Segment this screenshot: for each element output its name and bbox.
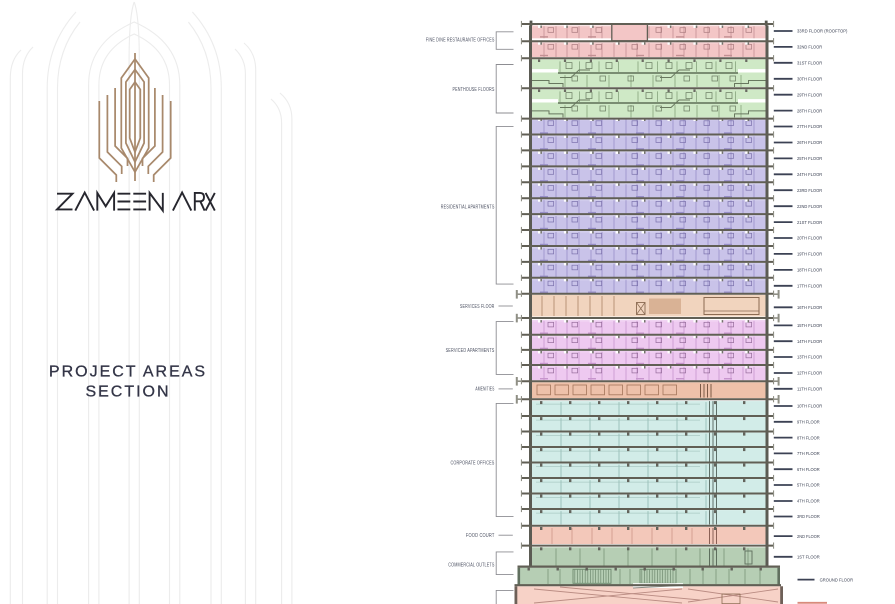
svg-text:30TH FLOOR: 30TH FLOOR <box>797 77 823 83</box>
svg-text:28TH FLOOR: 28TH FLOOR <box>797 108 823 114</box>
svg-text:RESIDENTIAL APARTMENTS: RESIDENTIAL APARTMENTS <box>441 204 495 210</box>
svg-text:33RD FLOOR (ROOFTOP): 33RD FLOOR (ROOFTOP) <box>797 29 848 35</box>
svg-text:14TH FLOOR: 14TH FLOOR <box>797 339 823 345</box>
svg-text:3RD FLOOR: 3RD FLOOR <box>797 514 820 520</box>
svg-text:20TH FLOOR: 20TH FLOOR <box>797 236 823 242</box>
svg-text:GROUND FLOOR: GROUND FLOOR <box>820 577 854 583</box>
svg-text:COMMERCIAL OUTLETS: COMMERCIAL OUTLETS <box>448 562 495 568</box>
svg-text:CORPORATE OFFICES: CORPORATE OFFICES <box>451 461 495 467</box>
svg-text:PENTHOUSE FLOORS: PENTHOUSE FLOORS <box>453 87 495 93</box>
svg-text:5TH FLOOR: 5TH FLOOR <box>797 483 820 489</box>
svg-text:16TH FLOOR: 16TH FLOOR <box>797 305 823 311</box>
svg-text:15TH FLOOR: 15TH FLOOR <box>797 323 823 329</box>
svg-text:FOOD COURT: FOOD COURT <box>466 533 495 539</box>
svg-text:SECTION: SECTION <box>85 384 170 401</box>
svg-text:22ND FLOOR: 22ND FLOOR <box>797 204 823 210</box>
svg-text:2ND FLOOR: 2ND FLOOR <box>797 534 820 540</box>
svg-text:4TH FLOOR: 4TH FLOOR <box>797 499 820 505</box>
svg-text:31ST FLOOR: 31ST FLOOR <box>797 61 823 67</box>
svg-text:21ST FLOOR: 21ST FLOOR <box>797 220 823 226</box>
svg-text:10TH FLOOR: 10TH FLOOR <box>797 404 823 410</box>
svg-text:PROJECT AREAS: PROJECT AREAS <box>49 364 207 381</box>
svg-text:SERVICES FLOOR: SERVICES FLOOR <box>460 304 495 310</box>
svg-text:24TH FLOOR: 24TH FLOOR <box>797 172 823 178</box>
svg-text:9TH FLOOR: 9TH FLOOR <box>797 420 820 426</box>
svg-text:27TH FLOOR: 27TH FLOOR <box>797 124 823 130</box>
svg-text:AMENITIES: AMENITIES <box>475 387 494 393</box>
svg-text:17TH FLOOR: 17TH FLOOR <box>797 284 823 290</box>
svg-text:32ND FLOOR: 32ND FLOOR <box>797 45 823 51</box>
svg-text:FINE DINE RESTAURANTE OFFICES: FINE DINE RESTAURANTE OFFICES <box>426 38 495 44</box>
svg-text:6TH FLOOR: 6TH FLOOR <box>797 467 820 473</box>
svg-text:23RD FLOOR: 23RD FLOOR <box>797 188 823 194</box>
svg-text:7TH FLOOR: 7TH FLOOR <box>797 451 820 457</box>
svg-text:SERVICED APARTMENTS: SERVICED APARTMENTS <box>446 348 495 354</box>
svg-text:25TH FLOOR: 25TH FLOOR <box>797 156 823 162</box>
svg-text:26TH FLOOR: 26TH FLOOR <box>797 140 823 146</box>
svg-text:12TH FLOOR: 12TH FLOOR <box>797 371 823 377</box>
svg-text:19TH FLOOR: 19TH FLOOR <box>797 252 823 258</box>
svg-text:13TH FLOOR: 13TH FLOOR <box>797 355 823 361</box>
svg-text:1ST FLOOR: 1ST FLOOR <box>797 555 820 561</box>
svg-text:11TH FLOOR: 11TH FLOOR <box>797 387 823 393</box>
svg-text:18TH FLOOR: 18TH FLOOR <box>797 268 823 274</box>
svg-text:8TH FLOOR: 8TH FLOOR <box>797 435 820 441</box>
svg-text:29TH FLOOR: 29TH FLOOR <box>797 92 823 98</box>
